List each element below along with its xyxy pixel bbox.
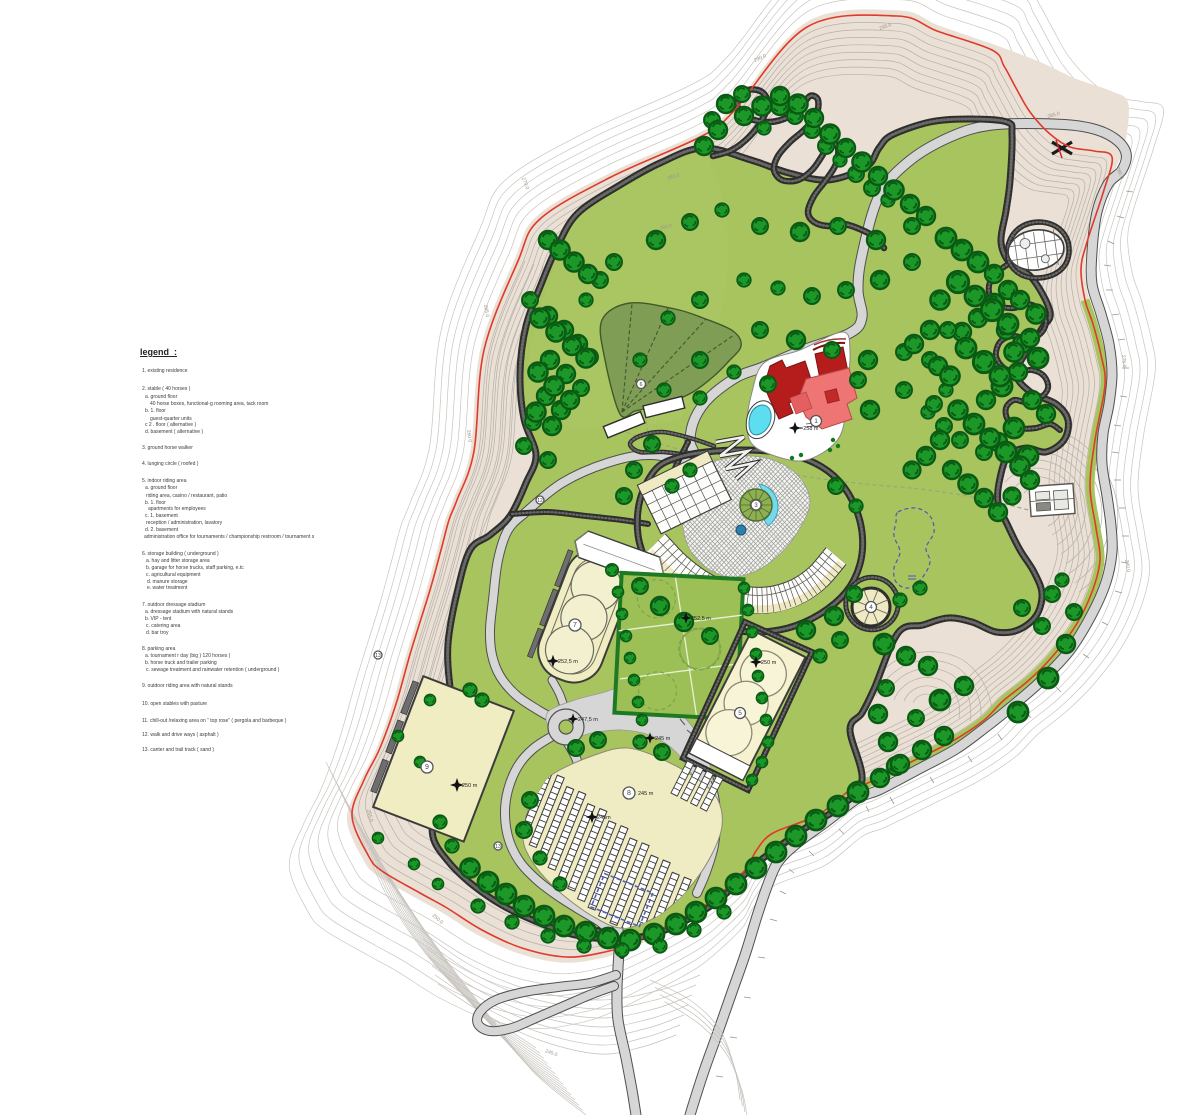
svg-text:250 m: 250 m <box>462 783 478 789</box>
svg-text:275.0: 275.0 <box>1120 355 1127 368</box>
svg-text:250 m: 250 m <box>761 660 777 666</box>
svg-text:9: 9 <box>425 764 429 771</box>
svg-text:7: 7 <box>573 622 577 629</box>
svg-text:5: 5 <box>738 710 742 717</box>
svg-text:247,5 m: 247,5 m <box>578 717 598 723</box>
svg-text:4: 4 <box>869 604 873 611</box>
svg-text:245 m: 245 m <box>638 791 654 797</box>
svg-text:252,5 m: 252,5 m <box>691 616 711 622</box>
svg-text:12: 12 <box>537 498 543 504</box>
svg-text:252,5 m: 252,5 m <box>558 659 578 665</box>
svg-text:13: 13 <box>495 844 501 850</box>
svg-text:245 m: 245 m <box>655 736 671 742</box>
svg-text:1: 1 <box>814 418 818 425</box>
svg-text:6: 6 <box>639 382 642 388</box>
svg-text:13: 13 <box>375 653 381 659</box>
svg-text:245m: 245m <box>597 815 611 821</box>
svg-text:8: 8 <box>627 790 631 797</box>
